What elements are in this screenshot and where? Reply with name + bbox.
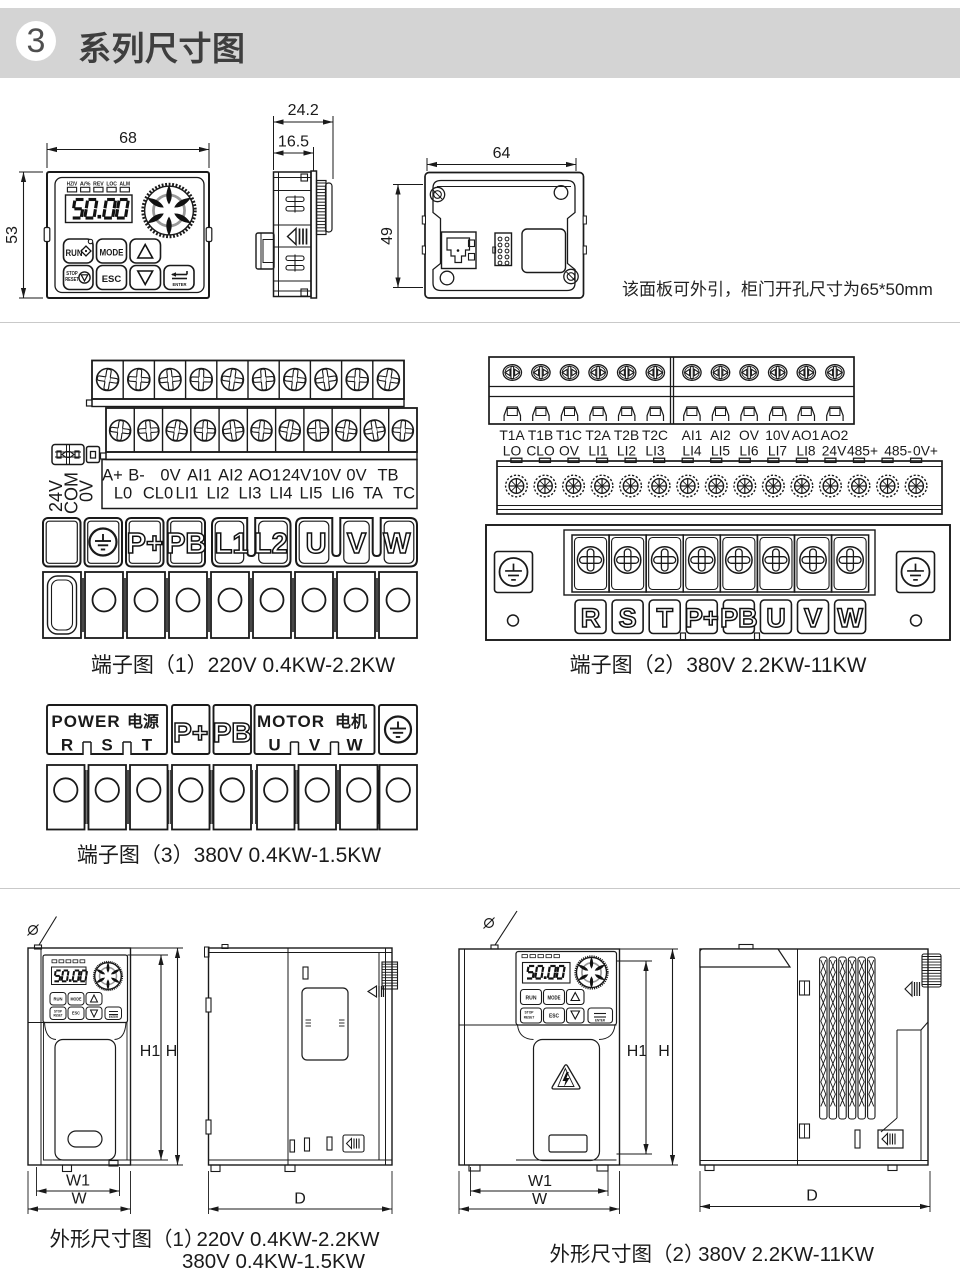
svg-text:0V: 0V: [160, 467, 180, 485]
svg-text:R: R: [61, 736, 73, 755]
svg-text:V: V: [804, 603, 822, 633]
svg-text:A/%: A/%: [80, 182, 91, 188]
svg-text:LI5: LI5: [300, 485, 323, 503]
svg-text:CLO: CLO: [526, 444, 555, 459]
svg-text:P+: P+: [173, 717, 208, 748]
svg-text:端子图（1）220V 0.4KW-2.2KW: 端子图（1）220V 0.4KW-2.2KW: [91, 654, 395, 677]
svg-text:LI4: LI4: [270, 485, 293, 503]
svg-text:485-: 485-: [884, 444, 912, 459]
svg-text:10V: 10V: [312, 467, 341, 485]
svg-text:L2: L2: [254, 528, 288, 560]
svg-text:外形尺寸图（2）: 外形尺寸图（2）: [550, 1243, 705, 1266]
svg-text:TA: TA: [363, 485, 383, 503]
svg-text:LI2: LI2: [207, 485, 230, 503]
svg-text:MODE: MODE: [100, 248, 124, 259]
svg-text:W: W: [383, 528, 411, 560]
svg-text:T2C: T2C: [642, 428, 668, 443]
svg-text:R: R: [581, 603, 601, 633]
svg-text:ENTER: ENTER: [173, 282, 187, 288]
svg-text:LI1: LI1: [176, 485, 199, 503]
svg-text:ALM: ALM: [120, 182, 131, 188]
svg-text:HZ/V: HZ/V: [67, 182, 78, 188]
svg-text:ESC: ESC: [102, 274, 122, 285]
svg-text:AI2: AI2: [218, 467, 243, 485]
svg-text:LI2: LI2: [617, 444, 636, 459]
svg-text:H1: H1: [627, 1043, 648, 1060]
svg-text:W: W: [346, 736, 363, 755]
svg-text:端子图（2）380V 2.2KW-11KW: 端子图（2）380V 2.2KW-11KW: [570, 654, 867, 677]
svg-text:LI8: LI8: [796, 444, 816, 459]
svg-text:V: V: [347, 528, 367, 560]
svg-text:49: 49: [379, 227, 396, 245]
svg-text:外形尺寸图（1）: 外形尺寸图（1）: [50, 1228, 205, 1251]
svg-text:REV: REV: [93, 182, 104, 188]
svg-text:LI6: LI6: [739, 444, 759, 459]
svg-text:D: D: [294, 1191, 306, 1208]
svg-text:T2B: T2B: [614, 428, 639, 443]
svg-text:PB: PB: [166, 528, 206, 560]
svg-text:MODE: MODE: [548, 996, 561, 1002]
svg-text:RESET: RESET: [54, 1014, 64, 1018]
svg-text:电机: 电机: [335, 712, 367, 731]
svg-text:RUN: RUN: [54, 997, 64, 1002]
svg-text:LI1: LI1: [588, 444, 607, 459]
svg-text:H1: H1: [140, 1043, 161, 1060]
svg-text:T1A: T1A: [499, 428, 525, 443]
svg-text:TC: TC: [393, 485, 415, 503]
svg-text:64: 64: [493, 145, 511, 162]
svg-text:LOC: LOC: [106, 182, 117, 188]
svg-text:LO: LO: [503, 444, 522, 459]
svg-text:0V: 0V: [346, 467, 366, 485]
svg-text:16.5: 16.5: [278, 134, 309, 151]
svg-text:W1: W1: [66, 1173, 90, 1190]
svg-text:W1: W1: [528, 1173, 552, 1190]
svg-text:电源: 电源: [127, 712, 159, 731]
svg-text:380V 2.2KW-11KW: 380V 2.2KW-11KW: [698, 1243, 875, 1266]
svg-text:T1B: T1B: [528, 428, 553, 443]
svg-text:POWER: POWER: [51, 712, 120, 731]
svg-text:ESC: ESC: [72, 1011, 81, 1016]
svg-text:0V+: 0V+: [913, 444, 938, 459]
svg-text:W: W: [837, 603, 863, 633]
svg-text:PB: PB: [213, 717, 252, 748]
svg-text:MODE: MODE: [71, 997, 82, 1002]
svg-text:AI2: AI2: [710, 428, 731, 443]
svg-text:RESET: RESET: [524, 1015, 535, 1020]
svg-text:B-: B-: [128, 467, 145, 485]
svg-text:485+: 485+: [847, 444, 878, 459]
svg-text:P+: P+: [685, 603, 719, 633]
svg-text:ENTER: ENTER: [595, 1019, 605, 1023]
svg-text:53: 53: [4, 226, 21, 244]
svg-text:AI1: AI1: [682, 428, 703, 443]
svg-text:24V: 24V: [282, 467, 311, 485]
svg-text:U: U: [306, 528, 327, 560]
svg-text:RESET: RESET: [65, 277, 79, 283]
svg-text:AI1: AI1: [187, 467, 212, 485]
svg-text:W: W: [532, 1191, 548, 1208]
svg-text:T2A: T2A: [585, 428, 611, 443]
svg-text:CL0: CL0: [143, 485, 173, 503]
svg-text:24.2: 24.2: [288, 102, 319, 119]
svg-text:T: T: [656, 603, 673, 633]
svg-text:T: T: [142, 736, 153, 755]
svg-text:H: H: [658, 1043, 670, 1060]
svg-text:LI5: LI5: [711, 444, 731, 459]
svg-text:该面板可外引，柜门开孔尺寸为65*50mm: 该面板可外引，柜门开孔尺寸为65*50mm: [622, 280, 933, 299]
svg-text:10V: 10V: [765, 428, 790, 443]
svg-text:AO1: AO1: [248, 467, 281, 485]
svg-text:24V: 24V: [822, 444, 847, 459]
svg-text:端子图（3）380V 0.4KW-1.5KW: 端子图（3）380V 0.4KW-1.5KW: [77, 844, 381, 867]
svg-text:AO2: AO2: [821, 428, 849, 443]
svg-text:LI4: LI4: [682, 444, 702, 459]
svg-text:U: U: [766, 603, 786, 633]
svg-text:U: U: [268, 736, 280, 755]
svg-text:AO1: AO1: [792, 428, 820, 443]
svg-text:L1: L1: [215, 528, 249, 560]
svg-text:PB: PB: [720, 603, 758, 633]
svg-text:H: H: [166, 1043, 178, 1060]
svg-text:D: D: [806, 1188, 818, 1205]
svg-text:LI3: LI3: [645, 444, 665, 459]
svg-text:A+: A+: [102, 467, 123, 485]
svg-text:LI3: LI3: [239, 485, 262, 503]
svg-text:LI6: LI6: [332, 485, 355, 503]
svg-text:ENTER: ENTER: [109, 1015, 119, 1019]
svg-text:MOTOR: MOTOR: [257, 712, 325, 731]
svg-text:RUN: RUN: [66, 248, 83, 258]
svg-text:ESC: ESC: [549, 1014, 559, 1020]
svg-text:220V 0.4KW-2.2KW: 220V 0.4KW-2.2KW: [196, 1228, 380, 1251]
svg-text:OV: OV: [739, 428, 760, 443]
svg-text:LI7: LI7: [768, 444, 787, 459]
svg-text:L0: L0: [114, 485, 132, 503]
svg-text:380V 0.4KW-1.5KW: 380V 0.4KW-1.5KW: [182, 1250, 366, 1273]
svg-text:68: 68: [119, 130, 137, 147]
svg-text:RUN: RUN: [526, 996, 537, 1002]
svg-text:W: W: [71, 1191, 87, 1208]
svg-text:V: V: [309, 736, 321, 755]
svg-text:0V: 0V: [77, 480, 97, 502]
svg-text:P+: P+: [127, 528, 163, 560]
svg-text:S: S: [619, 603, 637, 633]
svg-text:TB: TB: [377, 467, 398, 485]
svg-text:S: S: [101, 736, 112, 755]
svg-text:OV: OV: [559, 444, 580, 459]
svg-text:T1C: T1C: [556, 428, 582, 443]
